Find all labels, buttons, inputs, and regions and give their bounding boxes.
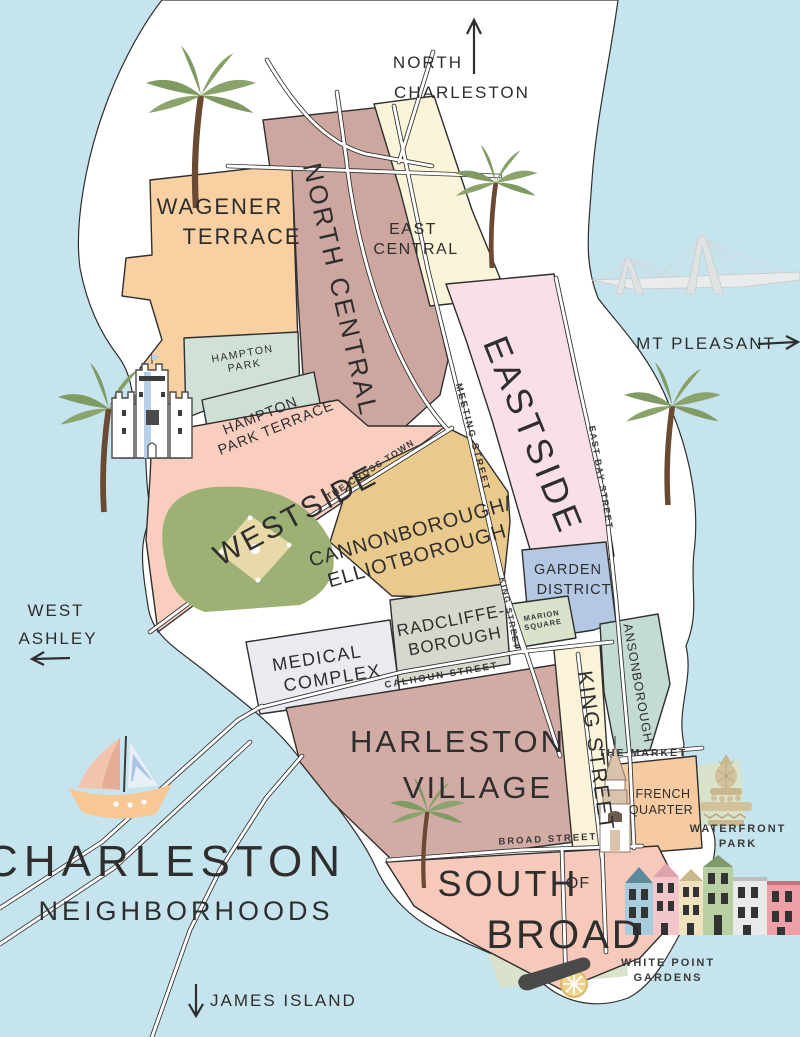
svg-text:CHARLESTON: CHARLESTON (394, 83, 530, 102)
map-title: CHARLESTON NEIGHBORHOODS (0, 837, 346, 926)
title-line-2: NEIGHBORHOODS (38, 896, 333, 926)
svg-text:WEST: WEST (27, 601, 84, 620)
svg-text:BROAD: BROAD (486, 913, 643, 957)
svg-text:GARDENS: GARDENS (633, 972, 702, 984)
svg-text:WATERFRONT: WATERFRONT (690, 823, 787, 835)
james-island-label: JAMES ISLAND (210, 991, 357, 1010)
svg-text:EAST: EAST (389, 221, 437, 238)
svg-text:FRENCH: FRENCH (635, 787, 690, 801)
svg-text:NORTH: NORTH (393, 53, 463, 72)
svg-text:QUARTER: QUARTER (629, 803, 693, 817)
mt-pleasant-label: MT PLEASANT (636, 334, 776, 353)
svg-text:CENTRAL: CENTRAL (373, 241, 458, 258)
svg-text:PARK: PARK (719, 838, 757, 850)
svg-text:ASHLEY: ASHLEY (18, 629, 97, 648)
svg-text:TERRACE: TERRACE (182, 224, 301, 249)
the-market-label: THE MARKET (599, 747, 688, 759)
svg-text:GARDEN: GARDEN (534, 562, 602, 578)
charleston-neighborhood-map: MEETING STREET KING STREET EAST BAY STRE… (0, 0, 800, 1037)
svg-text:DISTRICT: DISTRICT (537, 582, 612, 598)
svg-text:VILLAGE: VILLAGE (403, 770, 553, 805)
svg-text:OF: OF (566, 875, 590, 892)
svg-text:HARLESTON: HARLESTON (350, 724, 566, 759)
title-line-1: CHARLESTON (0, 837, 346, 886)
svg-text:WAGENER: WAGENER (157, 194, 284, 219)
svg-text:WHITE POINT: WHITE POINT (621, 957, 715, 969)
svg-text:SOUTH: SOUTH (438, 863, 579, 904)
